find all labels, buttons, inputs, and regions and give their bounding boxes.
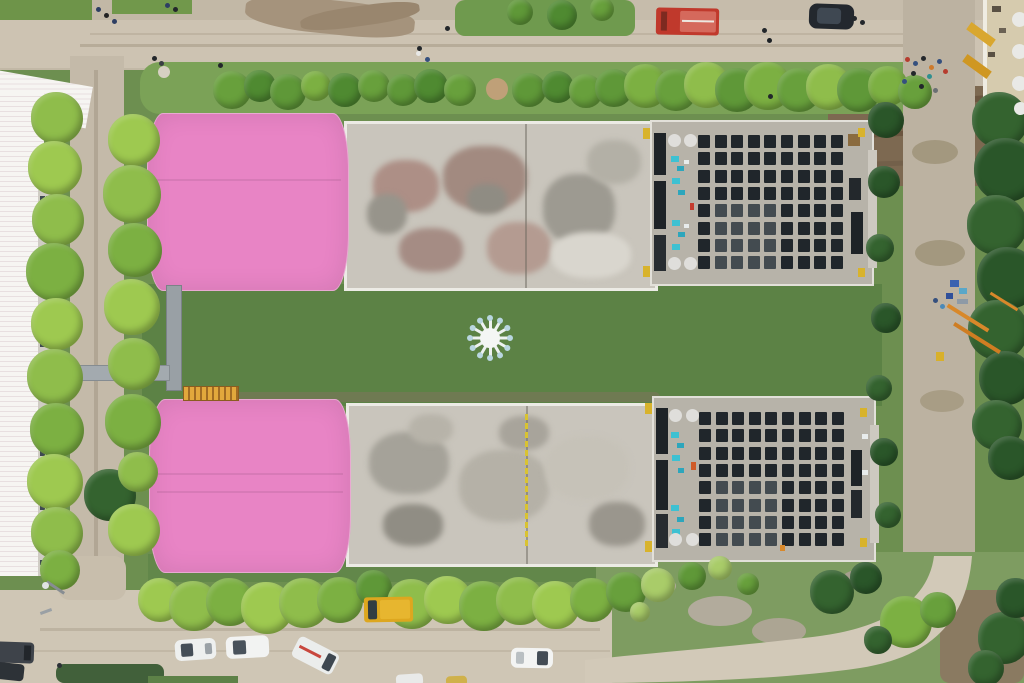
orange-marker bbox=[780, 545, 785, 551]
person bbox=[927, 74, 932, 79]
tank bbox=[1012, 12, 1024, 27]
yellow-car-partial bbox=[446, 676, 467, 683]
fire-truck-detail bbox=[661, 12, 667, 31]
person bbox=[104, 13, 109, 18]
streetlight-arm bbox=[46, 580, 65, 594]
person bbox=[416, 51, 421, 56]
person bbox=[445, 26, 450, 31]
sculpture-spoke-tip bbox=[496, 351, 504, 359]
sculpture-spoke-tip bbox=[487, 315, 493, 321]
cyan-unit bbox=[672, 455, 680, 461]
yellow-marker bbox=[860, 408, 867, 417]
cyan-unit bbox=[677, 517, 684, 522]
person bbox=[905, 57, 910, 62]
person bbox=[159, 61, 164, 66]
white-car bbox=[174, 638, 216, 662]
tank bbox=[686, 533, 699, 546]
yellow-box bbox=[936, 352, 944, 361]
solar-panel bbox=[851, 490, 862, 518]
white-unit bbox=[684, 160, 689, 164]
black-car bbox=[809, 3, 855, 30]
white-car-detail bbox=[516, 652, 524, 664]
person bbox=[762, 28, 767, 33]
roof-vent bbox=[988, 52, 995, 57]
person bbox=[919, 84, 924, 89]
person bbox=[425, 57, 430, 62]
person bbox=[911, 71, 916, 76]
roof-vent bbox=[999, 28, 1006, 33]
tank bbox=[686, 409, 699, 422]
streetlight-head bbox=[42, 582, 49, 589]
orange-pipe bbox=[990, 292, 1019, 312]
yellow-marker bbox=[858, 268, 865, 277]
sculpture-spoke-tip bbox=[467, 335, 473, 341]
person bbox=[96, 7, 101, 12]
solar-panel bbox=[656, 460, 668, 510]
person bbox=[902, 79, 907, 84]
tank bbox=[684, 134, 697, 147]
solar-panel bbox=[654, 235, 666, 271]
white-van bbox=[290, 635, 341, 676]
white-car-detail bbox=[537, 651, 548, 665]
white-unit bbox=[862, 470, 868, 475]
sculpture-spoke-tip bbox=[507, 335, 513, 341]
solar-panel bbox=[851, 450, 862, 486]
yellow-truck-detail bbox=[368, 600, 377, 619]
cyan-unit bbox=[678, 232, 685, 237]
white-van-detail bbox=[321, 653, 337, 672]
cyan-unit bbox=[677, 443, 684, 448]
dark-van-detail bbox=[24, 645, 32, 660]
yellow-marker bbox=[643, 128, 650, 139]
stair-step bbox=[966, 22, 996, 47]
yellow-marker bbox=[643, 266, 650, 277]
person bbox=[913, 61, 918, 66]
tank bbox=[684, 257, 697, 270]
tank bbox=[1012, 44, 1024, 59]
orange-marker bbox=[691, 462, 696, 470]
black-car-detail bbox=[817, 7, 842, 24]
teal-unit bbox=[678, 468, 684, 473]
fire-truck bbox=[656, 7, 719, 35]
white-unit bbox=[684, 224, 689, 228]
solar-panel bbox=[654, 133, 666, 175]
blue-equip bbox=[959, 288, 967, 294]
tank bbox=[668, 134, 681, 147]
person bbox=[929, 65, 934, 70]
yellow-marker bbox=[858, 128, 865, 137]
cyan-unit bbox=[678, 190, 685, 195]
person bbox=[860, 20, 865, 25]
stair-step bbox=[962, 54, 992, 79]
white-car-detail bbox=[181, 643, 194, 657]
tank bbox=[669, 533, 682, 546]
person bbox=[112, 19, 117, 24]
cyan-unit bbox=[671, 432, 679, 438]
blue-equip bbox=[946, 293, 953, 299]
tank bbox=[669, 409, 682, 422]
orange-pipe bbox=[953, 322, 1001, 354]
person bbox=[218, 63, 223, 68]
white-car-detail bbox=[233, 640, 247, 655]
yellow-marker bbox=[860, 538, 867, 547]
cyan-unit bbox=[672, 178, 680, 184]
solar-panel bbox=[654, 181, 666, 229]
cyan-unit bbox=[672, 220, 680, 226]
dark-van bbox=[0, 661, 25, 681]
yellow-marker bbox=[645, 541, 652, 552]
streetlight-pole bbox=[40, 608, 52, 615]
person bbox=[933, 88, 938, 93]
cyan-unit bbox=[677, 166, 684, 171]
person bbox=[943, 69, 948, 74]
cyan-unit bbox=[671, 156, 679, 162]
person bbox=[921, 56, 926, 61]
tank bbox=[668, 257, 681, 270]
white-car-detail bbox=[205, 643, 213, 654]
roof-vent bbox=[992, 6, 1001, 12]
person bbox=[152, 56, 157, 61]
yellow-truck bbox=[364, 597, 413, 623]
person bbox=[940, 304, 945, 309]
orange-pipe bbox=[947, 304, 990, 333]
person bbox=[768, 94, 773, 99]
person bbox=[57, 663, 62, 668]
person bbox=[767, 38, 772, 43]
yellow-marker bbox=[645, 403, 652, 414]
white-car bbox=[511, 648, 553, 669]
solar-panel bbox=[656, 408, 668, 454]
yellow-truck-detail bbox=[380, 600, 410, 620]
white-car-partial bbox=[396, 673, 424, 683]
gray-equip bbox=[957, 299, 968, 304]
person bbox=[165, 3, 170, 8]
red-marker bbox=[690, 203, 694, 210]
white-unit bbox=[862, 434, 868, 439]
solar-panel bbox=[851, 212, 863, 254]
solar-panel bbox=[656, 514, 668, 548]
tank bbox=[1014, 102, 1024, 115]
cyan-unit bbox=[671, 505, 679, 511]
white-car bbox=[225, 635, 269, 659]
tank bbox=[1012, 76, 1024, 91]
blue-equip bbox=[950, 280, 959, 287]
sculpture-spoke-tip bbox=[487, 355, 493, 361]
person bbox=[173, 7, 178, 12]
sun-sculpture bbox=[467, 315, 513, 361]
dark-van bbox=[0, 641, 34, 663]
white-van-detail bbox=[299, 645, 322, 659]
person bbox=[852, 16, 857, 21]
aerial-photo-stage: Aerial drone view of a campus: two long … bbox=[0, 0, 1024, 683]
person bbox=[933, 298, 938, 303]
objects-layer bbox=[0, 0, 1024, 683]
sculpture-spoke-tip bbox=[503, 344, 511, 352]
person bbox=[937, 59, 942, 64]
solar-panel bbox=[849, 178, 861, 200]
sculpture-center bbox=[480, 328, 500, 348]
cyan-unit bbox=[672, 244, 680, 250]
